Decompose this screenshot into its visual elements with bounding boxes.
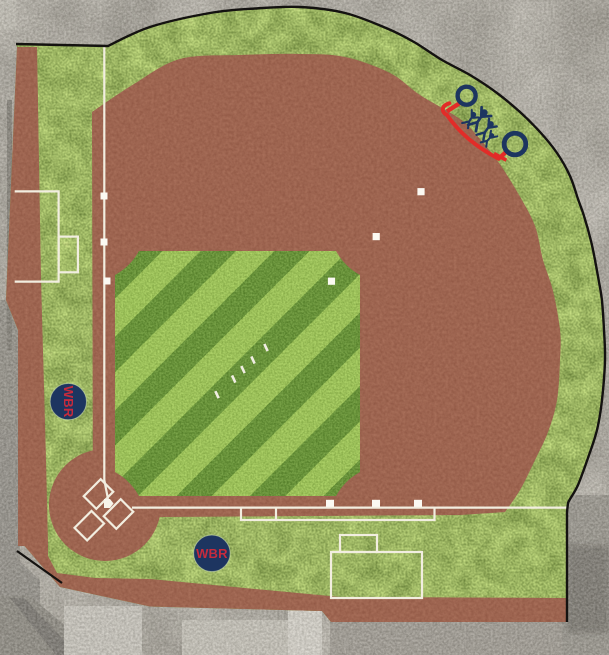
svg-text:WBR: WBR (61, 386, 76, 418)
svg-text:WBR: WBR (196, 546, 228, 561)
